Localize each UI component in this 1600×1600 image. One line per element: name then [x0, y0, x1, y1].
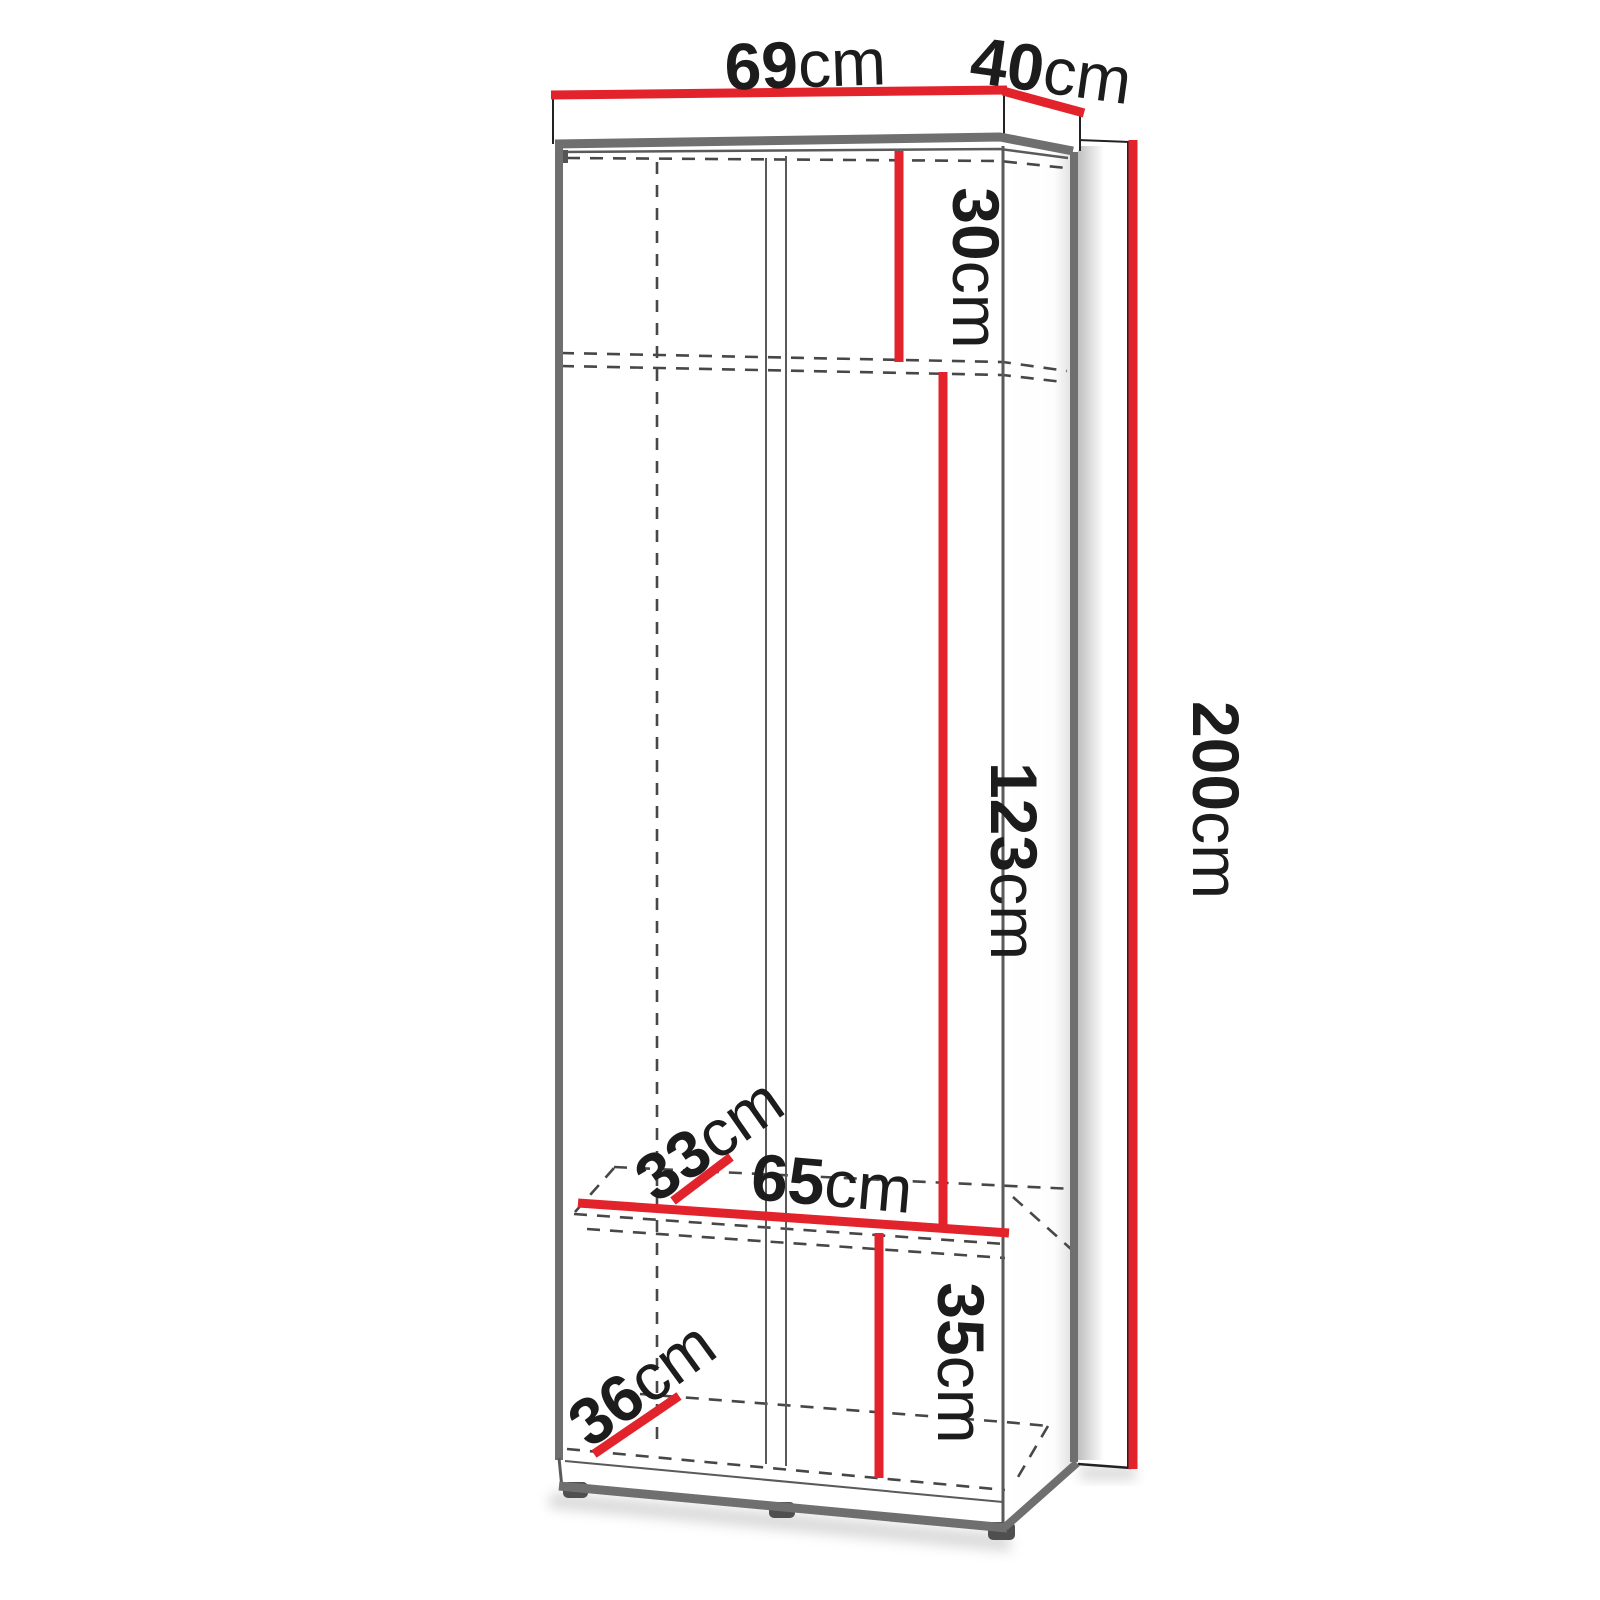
side-panel [1078, 140, 1131, 1468]
side-panel-shade [1078, 146, 1104, 1460]
wardrobe-dimension-drawing: 69cm 40cm 30cm 123cm 200cm 65cm 33cm 35c… [0, 0, 1600, 1600]
diagram-canvas: 69cm 40cm 30cm 123cm 200cm 65cm 33cm 35c… [0, 0, 1600, 1600]
dim-label-width: 69cm [723, 24, 887, 104]
dim-label-middle-compartment: 123cm [977, 762, 1051, 960]
dim-label-total-height: 200cm [1179, 701, 1253, 899]
dim-label-top-compartment: 30cm [939, 187, 1013, 348]
dim-label-bottom-compartment: 35cm [924, 1282, 998, 1443]
dim-label-shelf-width: 65cm [748, 1139, 915, 1227]
